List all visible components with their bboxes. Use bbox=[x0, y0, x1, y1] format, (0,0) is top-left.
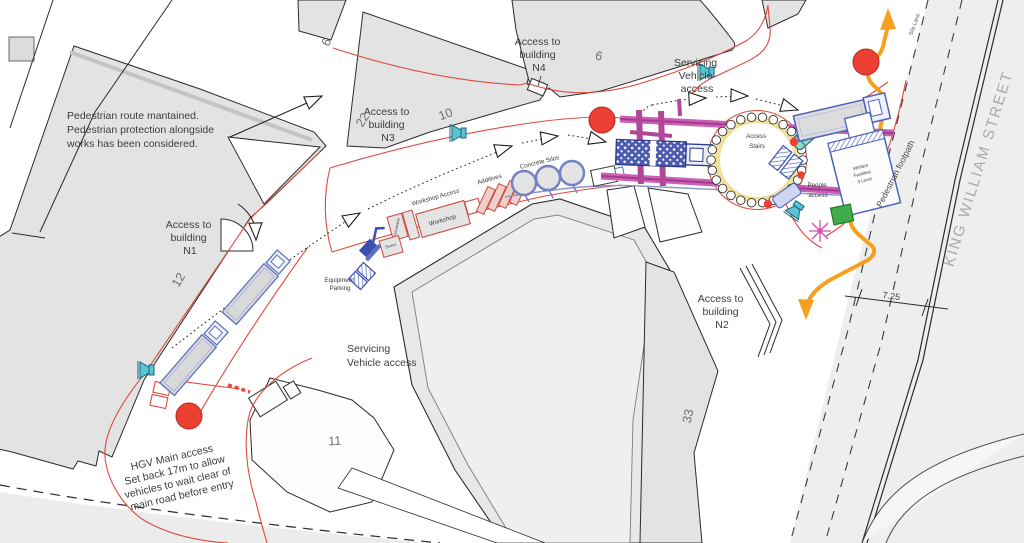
route-arrow bbox=[342, 207, 363, 227]
red-dot bbox=[764, 200, 772, 208]
plan-canvas: Pedestrian route mantained. Pedestrian p… bbox=[0, 0, 1024, 543]
label-equipment-parking: Equipment Parking bbox=[324, 277, 355, 292]
n2-entrance-canopy bbox=[740, 264, 782, 357]
label-access-n2: Access to building N2 bbox=[698, 293, 746, 331]
starburst-icon bbox=[809, 220, 831, 242]
orange-arrow-up bbox=[880, 8, 896, 30]
route-arrow bbox=[731, 89, 748, 103]
route-arrow bbox=[780, 99, 800, 116]
red-dot bbox=[790, 138, 798, 146]
route-arrow bbox=[494, 140, 514, 157]
orange-arrow-down bbox=[798, 299, 814, 320]
n1-door-swing bbox=[221, 219, 253, 251]
number-11: 11 bbox=[328, 434, 342, 449]
red-dot bbox=[797, 171, 805, 179]
note-pedestrian-route: Pedestrian route mantained. Pedestrian p… bbox=[66, 110, 217, 150]
label-servicing-top: Servicing Vehicle access bbox=[674, 57, 720, 95]
king-william-street-area bbox=[790, 0, 1024, 543]
n1-arrow bbox=[249, 223, 263, 240]
number-33: 33 bbox=[680, 408, 697, 425]
site-logistics-plan: Pedestrian route mantained. Pedestrian p… bbox=[0, 0, 1024, 543]
street-surface bbox=[790, 0, 1024, 543]
building-n2-annex-b bbox=[648, 188, 702, 242]
concrete-pump-truck bbox=[616, 139, 713, 167]
sounder-icon bbox=[450, 124, 466, 142]
label-hgv-note: HGV Main access Set back 17m to allow ve… bbox=[118, 439, 238, 514]
pedestrian-arrow bbox=[304, 90, 325, 109]
green-marker bbox=[831, 204, 854, 225]
label-dimension: 7.25 bbox=[882, 290, 901, 302]
building-6-strip bbox=[298, 0, 346, 40]
route-arrow bbox=[540, 130, 559, 145]
route-arrow bbox=[588, 132, 608, 149]
building-small-corner bbox=[9, 37, 34, 61]
